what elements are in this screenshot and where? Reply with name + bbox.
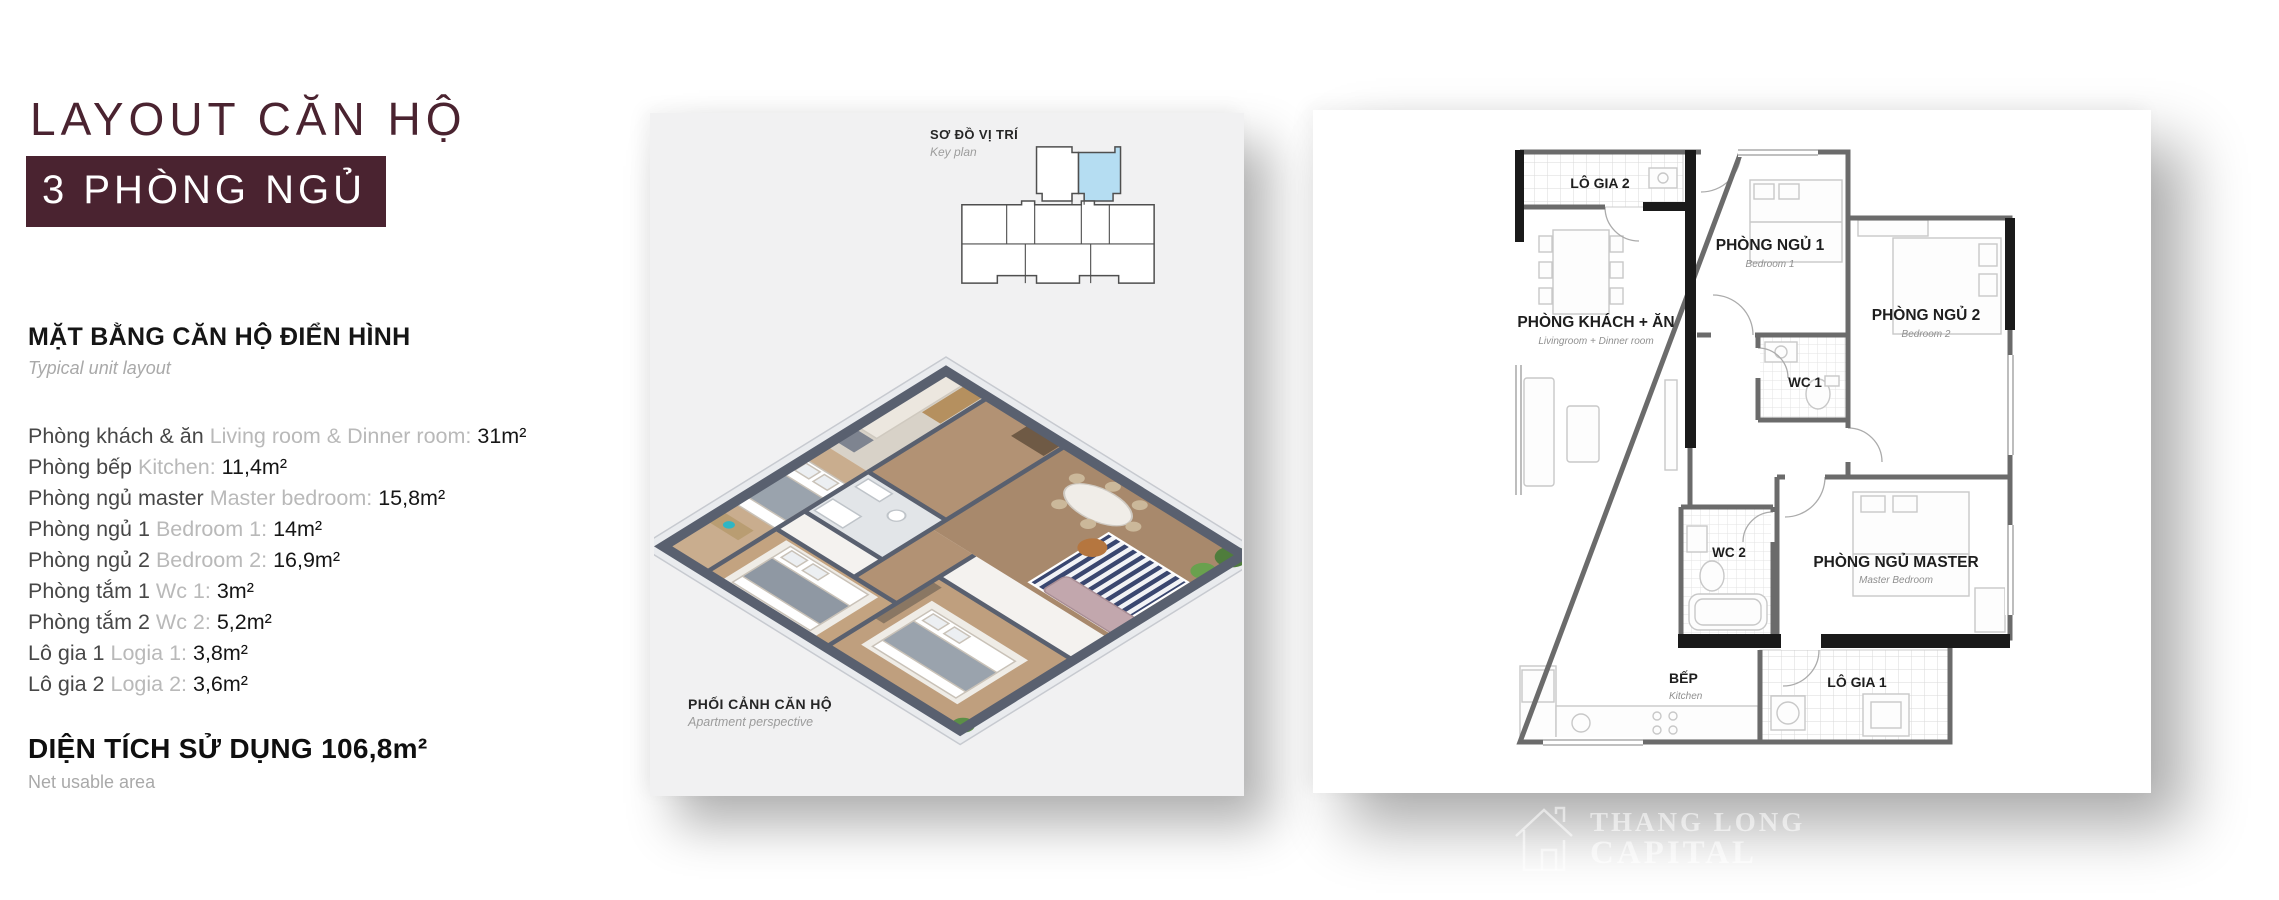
room-label-wc2: WC 2 <box>1712 545 1746 560</box>
total-label: DIỆN TÍCH SỬ DỤNG <box>28 733 313 764</box>
room-label-vn: Phòng tắm 2 <box>28 610 150 634</box>
room-area-value: 3,6m² <box>193 672 248 696</box>
list-item: Phòng tắm 2 Wc 2: 5,2m² <box>28 607 526 638</box>
room-label-vn: Phòng bếp <box>28 455 132 479</box>
list-item: Phòng ngủ master Master bedroom: 15,8m² <box>28 483 526 514</box>
room-area-value: 16,9m² <box>273 548 340 572</box>
room-label-vn: Phòng khách & ăn <box>28 424 204 448</box>
room-label-en: Bedroom 1: <box>156 517 267 541</box>
perspective-title: PHỐI CẢNH CĂN HỘ <box>688 696 832 712</box>
room-sublabel-master: Master Bedroom <box>1859 575 1933 586</box>
page-title: LAYOUT CĂN HỘ <box>30 92 466 146</box>
perspective-subtitle: Apartment perspective <box>688 715 813 729</box>
keyplan-highlighted-unit <box>1079 147 1121 201</box>
room-area-list: Phòng khách & ăn Living room & Dinner ro… <box>28 421 526 700</box>
room-area-value: 3,8m² <box>193 641 248 665</box>
room-sublabel-bedroom1: Bedroom 1 <box>1746 259 1795 270</box>
total-usable-area: DIỆN TÍCH SỬ DỤNG 106,8m² <box>28 733 428 765</box>
room-area-value: 15,8m² <box>378 486 445 510</box>
room-label-vn: Phòng ngủ master <box>28 486 204 510</box>
room-label-en: Wc 1: <box>156 579 211 603</box>
room-label-bedroom2: PHÒNG NGỦ 2 <box>1872 306 1981 324</box>
room-label-vn: Phòng ngủ 1 <box>28 517 150 541</box>
room-label-vn: Lô gia 2 <box>28 672 105 696</box>
page-subtitle-band: 3 PHÒNG NGỦ <box>26 156 386 227</box>
house-icon <box>1512 802 1576 876</box>
room-label-en: Logia 2: <box>111 672 188 696</box>
list-item: Phòng khách & ăn Living room & Dinner ro… <box>28 421 526 452</box>
watermark-line2: CAPITAL <box>1590 836 1805 871</box>
apartment-perspective-card: SƠ ĐỒ VỊ TRÍ Key plan <box>650 113 1244 796</box>
list-item: Phòng ngủ 1 Bedroom 1: 14m² <box>28 514 526 545</box>
room-sublabel-kitchen: Kitchen <box>1669 691 1703 702</box>
room-label-vn: Lô gia 1 <box>28 641 105 665</box>
floor-plan-svg: LÔ GIA 2 PHÒNG NGỦ 1 Bedroom 1 PHÒNG NGỦ… <box>1313 110 2151 793</box>
room-label-kitchen: BẾP <box>1669 670 1698 686</box>
room-area-value: 31m² <box>477 424 526 448</box>
total-value: 106,8m² <box>321 733 427 764</box>
section-heading-vn: MẶT BẰNG CĂN HỘ ĐIỂN HÌNH <box>28 323 411 352</box>
room-area-value: 5,2m² <box>217 610 272 634</box>
room-label-vn: Phòng ngủ 2 <box>28 548 150 572</box>
room-label-en: Bedroom 2: <box>156 548 267 572</box>
page: LAYOUT CĂN HỘ 3 PHÒNG NGỦ MẶT BẰNG CĂN H… <box>0 0 2279 900</box>
room-label-en: Master bedroom: <box>210 486 373 510</box>
list-item: Lô gia 2 Logia 2: 3,6m² <box>28 669 526 700</box>
room-label-en: Logia 1: <box>111 641 188 665</box>
room-label-en: Wc 2: <box>156 610 211 634</box>
room-area-value: 11,4m² <box>222 455 287 479</box>
room-sublabel-living: Livingroom + Dinner room <box>1538 336 1653 347</box>
watermark-line1: THANG LONG <box>1590 808 1805 836</box>
room-label-logia1: LÔ GIA 1 <box>1827 673 1887 690</box>
list-item: Phòng bếp Kitchen: 11,4m² <box>28 452 526 483</box>
room-label-vn: Phòng tắm 1 <box>28 579 150 603</box>
keyplan-title: SƠ ĐỒ VỊ TRÍ <box>930 127 1018 142</box>
list-item: Lô gia 1 Logia 1: 3,8m² <box>28 638 526 669</box>
section-heading-en: Typical unit layout <box>28 358 171 379</box>
room-label-living: PHÒNG KHÁCH + ĂN <box>1517 313 1674 331</box>
list-item: Phòng ngủ 2 Bedroom 2: 16,9m² <box>28 545 526 576</box>
room-label-master: PHÒNG NGỦ MASTER <box>1813 553 1978 571</box>
list-item: Phòng tắm 1 Wc 1: 3m² <box>28 576 526 607</box>
room-label-wc1: WC 1 <box>1788 375 1822 390</box>
room-label-en: Living room & Dinner room: <box>210 424 472 448</box>
room-label-bedroom1: PHÒNG NGỦ 1 <box>1716 236 1825 254</box>
room-sublabel-bedroom2: Bedroom 2 <box>1902 329 1951 340</box>
room-label-en: Kitchen: <box>138 455 216 479</box>
total-usable-area-en: Net usable area <box>28 772 155 793</box>
floor-plan-card: LÔ GIA 2 PHÒNG NGỦ 1 Bedroom 1 PHÒNG NGỦ… <box>1313 110 2151 793</box>
developer-watermark: THANG LONG CAPITAL <box>1512 802 1805 876</box>
room-area-value: 3m² <box>217 579 254 603</box>
room-area-value: 14m² <box>273 517 322 541</box>
room-label-logia2: LÔ GIA 2 <box>1570 174 1630 191</box>
